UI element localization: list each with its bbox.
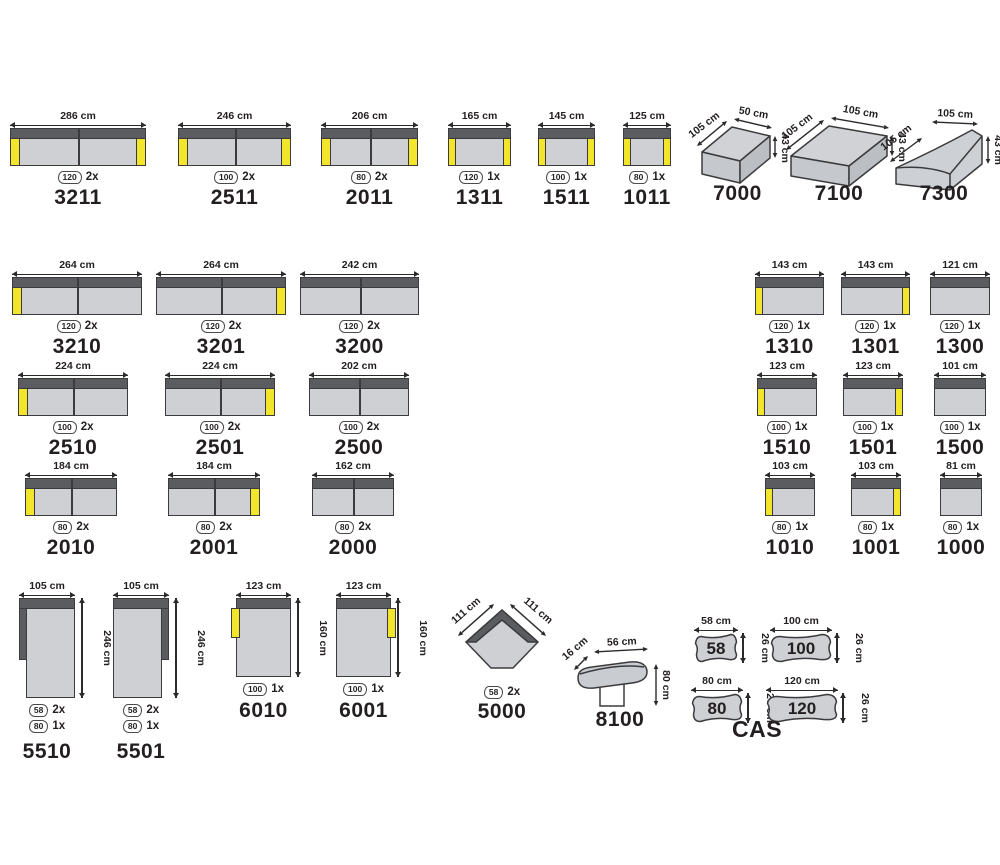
armrest-right (902, 287, 910, 315)
dimension-label: 100 cm (783, 616, 819, 627)
module-2510: 224 cm1002x2510 (18, 378, 128, 416)
badge-count: 1x (52, 721, 65, 733)
armrest-right (265, 388, 275, 416)
badge-count: 2x (228, 422, 241, 434)
height-dimension: 160 cm (397, 598, 413, 677)
badge-count: 2x (219, 522, 232, 534)
dimension-arrow (623, 125, 671, 127)
cushion-size-badge: 80 (772, 521, 791, 534)
armrest-right (276, 287, 286, 315)
seat (940, 488, 982, 516)
width-dimension: 143 cm (841, 260, 910, 275)
badge-row: 582x (484, 686, 520, 699)
dimension-arrow (842, 693, 844, 723)
dimension-label: 184 cm (196, 461, 232, 472)
width-dimension: 123 cm (336, 581, 391, 596)
cushion-size-badge: 120 (769, 320, 793, 333)
module-5510: 105 cm246 cm582x801x5510 (19, 598, 75, 698)
model-number: 1001 (826, 536, 926, 560)
badge-row: 802x (335, 521, 371, 534)
cushion-badges: 802x (296, 171, 443, 184)
badge-count: 2x (85, 321, 98, 333)
cushion-badges: 582x (425, 686, 579, 699)
cushion-badges: 802x (143, 521, 285, 534)
dimension-arrow (300, 274, 419, 276)
cushion-size-badge: 58 (29, 704, 48, 717)
dimension-label: 58 cm (701, 616, 731, 627)
dimension-arrow (236, 595, 291, 597)
width-dimension: 286 cm (10, 111, 146, 126)
badge-count: 2x (367, 321, 380, 333)
module-1310: 143 cm1201x1310 (755, 277, 824, 315)
armrest-right (408, 138, 418, 166)
badge-row: 801x (858, 521, 894, 534)
module-2000: 162 cm802x2000 (312, 478, 394, 516)
width-dimension: 206 cm (321, 111, 418, 126)
cushion-size-badge: 120 (57, 320, 81, 333)
width-dimension: 202 cm (309, 361, 409, 376)
module-1501: 123 cm1001x1501 (843, 378, 903, 416)
width-dimension: 105 cm (19, 581, 75, 596)
seat (757, 388, 817, 416)
width-dimension: 58 cm (694, 616, 738, 631)
cushion-badges: 1201x (905, 320, 1000, 333)
badge-count: 2x (367, 422, 380, 434)
dimension-label: 264 cm (59, 260, 95, 271)
dimension-label: 286 cm (60, 111, 96, 122)
badge-row: 582x (123, 704, 159, 717)
model-number: 6001 (311, 699, 416, 723)
dimension-label: 246 cm (101, 630, 113, 666)
cushion-size-badge: 80 (29, 720, 48, 733)
model-number: 5510 (0, 740, 100, 764)
pillow-drawing: 58 (694, 633, 738, 663)
dimension-label: 206 cm (352, 111, 388, 122)
dimension-label: 111 cm (521, 595, 555, 627)
module-1301: 143 cm1201x1301 (841, 277, 910, 315)
cushion-size-badge: 120 (855, 320, 879, 333)
module-2001: 184 cm802x2001 (168, 478, 260, 516)
width-dimension: 123 cm (757, 361, 817, 376)
dimension-arrow (836, 633, 838, 663)
cushion-size-badge: 120 (339, 320, 363, 333)
dimension-label: 43 cm (992, 135, 1000, 165)
width-dimension: 242 cm (300, 260, 419, 275)
cushion-size-badge: 100 (853, 421, 877, 434)
dimension-label: 242 cm (342, 260, 378, 271)
badge-row: 1001x (767, 421, 808, 434)
width-dimension: 224 cm (165, 361, 275, 376)
cushion-badges: 801x (915, 521, 1000, 534)
module-100: 100 cm10026 cm (770, 633, 832, 663)
badge-count: 1x (146, 721, 159, 733)
model-number: 2000 (287, 536, 419, 560)
module-1010: 103 cm801x1010 (765, 478, 815, 516)
model-number: 6010 (211, 699, 316, 723)
cushion-size-badge: 100 (53, 421, 77, 434)
badge-row: 1001x (243, 683, 284, 696)
cushion-size-badge: 100 (546, 171, 570, 184)
cushion-size-badge: 80 (123, 720, 142, 733)
cushion-size-badge: 80 (351, 171, 370, 184)
badge-row: 1201x (459, 171, 500, 184)
width-dimension: 80 cm (691, 676, 743, 691)
module-1000: 81 cm801x1000 (940, 478, 982, 516)
dimension-arrow (940, 475, 982, 477)
badge-count: 1x (795, 422, 808, 434)
dimension-label: 105 cm (123, 581, 159, 592)
width-dimension: 105 cm (113, 581, 169, 596)
armrest-right (136, 138, 146, 166)
armrest-left (178, 138, 188, 166)
cushion-size-badge: 120 (940, 320, 964, 333)
pillow-drawing: 100 (770, 633, 832, 663)
dimension-arrow (770, 630, 832, 632)
seat-divider (359, 378, 361, 416)
seat-divider (78, 128, 80, 166)
badge-row: 1001x (940, 421, 981, 434)
seat-divider (73, 378, 75, 416)
dimension-label: 58 (707, 639, 726, 658)
module-2501: 224 cm1002x2501 (165, 378, 275, 416)
seat (448, 138, 511, 166)
badge-row: 1202x (201, 320, 242, 333)
cushion-badges: 801x (826, 521, 926, 534)
dimension-arrow (297, 598, 299, 677)
armrest-left (755, 287, 763, 315)
corner-top-view: 111 cm111 cm (450, 600, 554, 684)
model-number: 2510 (0, 436, 153, 460)
armrest-left (25, 488, 35, 516)
armrest-left (623, 138, 631, 166)
dimension-arrow (397, 598, 399, 677)
badge-row: 582x (29, 704, 65, 717)
badge-row: 802x (351, 171, 387, 184)
badge-count: 1x (966, 522, 979, 534)
dimension-arrow (448, 125, 511, 127)
dimension-label: 224 cm (202, 361, 238, 372)
model-number: 5501 (88, 740, 194, 764)
dimension-label: 246 cm (195, 630, 207, 666)
badge-row: 1001x (343, 683, 384, 696)
model-number: 3211 (0, 186, 171, 210)
cushion-size-badge: 80 (943, 521, 962, 534)
height-dimension: 26 cm (836, 633, 852, 663)
dimension-label: 120 cm (784, 676, 820, 687)
width-dimension: 123 cm (236, 581, 291, 596)
cushion-badges: 1001x (909, 421, 1000, 434)
module-2010: 184 cm802x2010 (25, 478, 117, 516)
side-armrest (161, 608, 169, 660)
dimension-arrow (851, 475, 901, 477)
badge-row: 1002x (53, 421, 94, 434)
dimension-label: 162 cm (335, 461, 371, 472)
dimension-label: 145 cm (549, 111, 585, 122)
dimension-label: 80 cm (702, 676, 732, 687)
seat-divider (220, 378, 222, 416)
module-1311: 165 cm1201x1311 (448, 128, 511, 166)
dimension-label: 224 cm (55, 361, 91, 372)
badge-row: 1002x (200, 421, 241, 434)
armrest-right (503, 138, 511, 166)
cushion-size-badge: 80 (335, 521, 354, 534)
badge-count: 2x (146, 705, 159, 717)
module-3200: 242 cm1202x3200 (300, 277, 419, 315)
width-dimension: 224 cm (18, 361, 128, 376)
module-2500: 202 cm1002x2500 (309, 378, 409, 416)
cushion-badges: 1002x (0, 421, 153, 434)
cushion-size-badge: 80 (196, 521, 215, 534)
badge-row: 802x (53, 521, 89, 534)
seat (934, 388, 986, 416)
width-dimension: 246 cm (178, 111, 291, 126)
badge-row: 801x (29, 720, 65, 733)
dimension-label: 264 cm (203, 260, 239, 271)
badge-row: 1201x (855, 320, 896, 333)
height-dimension: 26 cm (842, 693, 858, 723)
dimension-arrow (321, 125, 418, 127)
seat (26, 608, 75, 698)
dimension-arrow (765, 475, 815, 477)
model-number: 1010 (740, 536, 840, 560)
model-number: 2501 (140, 436, 300, 460)
dimension-arrow (165, 375, 275, 377)
badge-count: 1x (881, 422, 894, 434)
badge-count: 1x (271, 684, 284, 696)
side-armrest (19, 608, 27, 660)
cushion-badges: 1202x (275, 320, 444, 333)
seat-divider (214, 478, 216, 516)
dimension-arrow (312, 475, 394, 477)
width-dimension: 145 cm (538, 111, 595, 126)
badge-row: 1002x (339, 421, 380, 434)
module-58: 58 cm5826 cm (694, 633, 738, 663)
cushion-size-badge: 100 (214, 171, 238, 184)
width-dimension: 100 cm (770, 616, 832, 631)
height-dimension: 246 cm (81, 598, 97, 698)
cushion-badges: 1001x (211, 683, 316, 696)
cushion-size-badge: 100 (200, 421, 224, 434)
dimension-label: 103 cm (858, 461, 894, 472)
module-CAS: CAS (712, 716, 802, 746)
cushion-size-badge: 100 (339, 421, 363, 434)
height-dimension: 26 cm (742, 633, 758, 663)
badge-row: 801x (943, 521, 979, 534)
model-number: 8100 (545, 708, 695, 732)
dimension-label: 50 cm (738, 105, 769, 122)
headrest-drawing: 16 cm56 cm80 cm (570, 638, 670, 710)
badge-count: 2x (375, 172, 388, 184)
badge-row: 1001x (546, 171, 587, 184)
width-dimension: 121 cm (930, 260, 990, 275)
badge-row: 802x (196, 521, 232, 534)
seat-divider (370, 128, 372, 166)
seat-divider (221, 277, 223, 315)
badge-count: 1x (487, 172, 500, 184)
seat (841, 287, 910, 315)
dimension-label: 143 cm (858, 260, 894, 271)
seat-divider (77, 277, 79, 315)
width-dimension: 125 cm (623, 111, 671, 126)
badge-count: 1x (371, 684, 384, 696)
armrest-left (321, 138, 331, 166)
dimension-label: 100 (787, 639, 815, 658)
width-dimension: 184 cm (25, 461, 117, 476)
cushion-badges: 801x (740, 521, 840, 534)
dimension-arrow (113, 595, 169, 597)
seat-divider (235, 128, 237, 166)
dimension-label: 123 cm (346, 581, 382, 592)
cushion-size-badge: 100 (940, 421, 964, 434)
badge-count: 2x (242, 172, 255, 184)
height-dimension: 160 cm (297, 598, 313, 677)
dimension-arrow (178, 125, 291, 127)
width-dimension: 184 cm (168, 461, 260, 476)
dimension-label: 165 cm (462, 111, 498, 122)
dimension-label: 81 cm (946, 461, 976, 472)
badge-count: 1x (968, 422, 981, 434)
badge-count: 1x (968, 321, 981, 333)
width-dimension: 103 cm (765, 461, 815, 476)
height-dimension: 246 cm (175, 598, 191, 698)
dimension-arrow (25, 475, 117, 477)
dimension-label: 103 cm (772, 461, 808, 472)
cushion-badges: 1202x (0, 171, 171, 184)
armrest-right (663, 138, 671, 166)
cushion-badges: 1002x (140, 421, 300, 434)
armrest-right (281, 138, 291, 166)
dimension-label: 101 cm (942, 361, 978, 372)
width-dimension: 101 cm (934, 361, 986, 376)
armrest-right (893, 488, 901, 516)
dimension-label: 246 cm (217, 111, 253, 122)
dimension-arrow (841, 274, 910, 276)
badge-row: 1202x (58, 171, 99, 184)
badge-count: 2x (358, 522, 371, 534)
dimension-label: 123 cm (855, 361, 891, 372)
dimension-arrow (156, 274, 286, 276)
model-number: 2011 (296, 186, 443, 210)
pouf-3d-drawing: 105 cm50 cm43 cm (690, 110, 785, 188)
dimension-arrow (18, 375, 128, 377)
cushion-badges: 582x801x (0, 704, 100, 733)
dimension-label: 123 cm (246, 581, 282, 592)
cushion-size-badge: 80 (53, 521, 72, 534)
dimension-arrow (742, 633, 744, 663)
cushion-size-badge: 100 (343, 683, 367, 696)
module-1511: 145 cm1001x1511 (538, 128, 595, 166)
badge-count: 1x (652, 172, 665, 184)
cushion-size-badge: 80 (629, 171, 648, 184)
armrest-left (10, 138, 20, 166)
model-number: 1300 (905, 335, 1000, 359)
module-5000: 111 cm111 cm582x5000 (450, 600, 554, 724)
badge-count: 2x (52, 705, 65, 717)
seat (336, 608, 391, 677)
dimension-arrow (168, 475, 260, 477)
width-dimension: 264 cm (12, 260, 142, 275)
dimension-arrow (843, 375, 903, 377)
module-3211: 286 cm1202x3211 (10, 128, 146, 166)
dimension-arrow (755, 274, 824, 276)
cushion-badges: 802x (287, 521, 419, 534)
seat-divider (71, 478, 73, 516)
armrest-right (387, 608, 396, 638)
dimension-label: 26 cm (853, 633, 865, 663)
dimension-label: 184 cm (53, 461, 89, 472)
cushion-badges: 1002x (284, 421, 434, 434)
dimension-arrow (175, 598, 177, 698)
armrest-left (757, 388, 765, 416)
badge-row: 1002x (214, 171, 255, 184)
badge-count: 1x (795, 522, 808, 534)
badge-row: 801x (772, 521, 808, 534)
badge-row: 1202x (339, 320, 380, 333)
dimension-arrow (19, 595, 75, 597)
dimension-arrow (934, 375, 986, 377)
cushion-badges: 1002x (153, 171, 316, 184)
module-3201: 264 cm1202x3201 (156, 277, 286, 315)
cushion-size-badge: 100 (243, 683, 267, 696)
armrest-left (765, 488, 773, 516)
armrest-left (538, 138, 546, 166)
dimension-label: 105 cm (29, 581, 65, 592)
dimension-arrow (691, 690, 743, 692)
width-dimension: 264 cm (156, 260, 286, 275)
seat (843, 388, 903, 416)
width-dimension: 103 cm (851, 461, 901, 476)
cushion-size-badge: 120 (201, 320, 225, 333)
dimension-label: 105 cm (937, 107, 973, 121)
dimension-label: 143 cm (772, 260, 808, 271)
armrest-right (250, 488, 260, 516)
badge-count: 2x (86, 172, 99, 184)
dimension-arrow (10, 125, 146, 127)
model-number: 2010 (0, 536, 142, 560)
dimension-label: 160 cm (317, 620, 329, 656)
module-1001: 103 cm801x1001 (851, 478, 901, 516)
badge-row: 1201x (769, 320, 810, 333)
model-number: 3200 (275, 335, 444, 359)
module-1011: 125 cm801x1011 (623, 128, 671, 166)
dimension-label: 105 cm (686, 110, 722, 141)
module-1300: 121 cm1201x1300 (930, 277, 990, 315)
dimension-label: 125 cm (629, 111, 665, 122)
dimension-label: 121 cm (942, 260, 978, 271)
armrest-right (587, 138, 595, 166)
badge-row: 1001x (853, 421, 894, 434)
seat (236, 608, 291, 677)
dimension-label: 80 cm (660, 670, 672, 700)
wedge-3d-drawing: 105 cm105 cm43 cm (888, 110, 1000, 188)
module-3210: 264 cm1202x3210 (12, 277, 142, 315)
cushion-size-badge: 58 (484, 686, 503, 699)
armrest-right (895, 388, 903, 416)
module-8100: 16 cm56 cm80 cm8100 (570, 638, 670, 734)
seat (113, 608, 162, 698)
width-dimension: 143 cm (755, 260, 824, 275)
module-1510: 123 cm1001x1510 (757, 378, 817, 416)
cushion-size-badge: 120 (58, 171, 82, 184)
dimension-arrow (309, 375, 409, 377)
cushion-badges: 802x (0, 521, 142, 534)
badge-count: 1x (574, 172, 587, 184)
dimension-arrow (694, 630, 738, 632)
seat-divider (360, 277, 362, 315)
dimension-label: 26 cm (859, 693, 871, 723)
cushion-size-badge: 80 (858, 521, 877, 534)
width-dimension: 81 cm (940, 461, 982, 476)
